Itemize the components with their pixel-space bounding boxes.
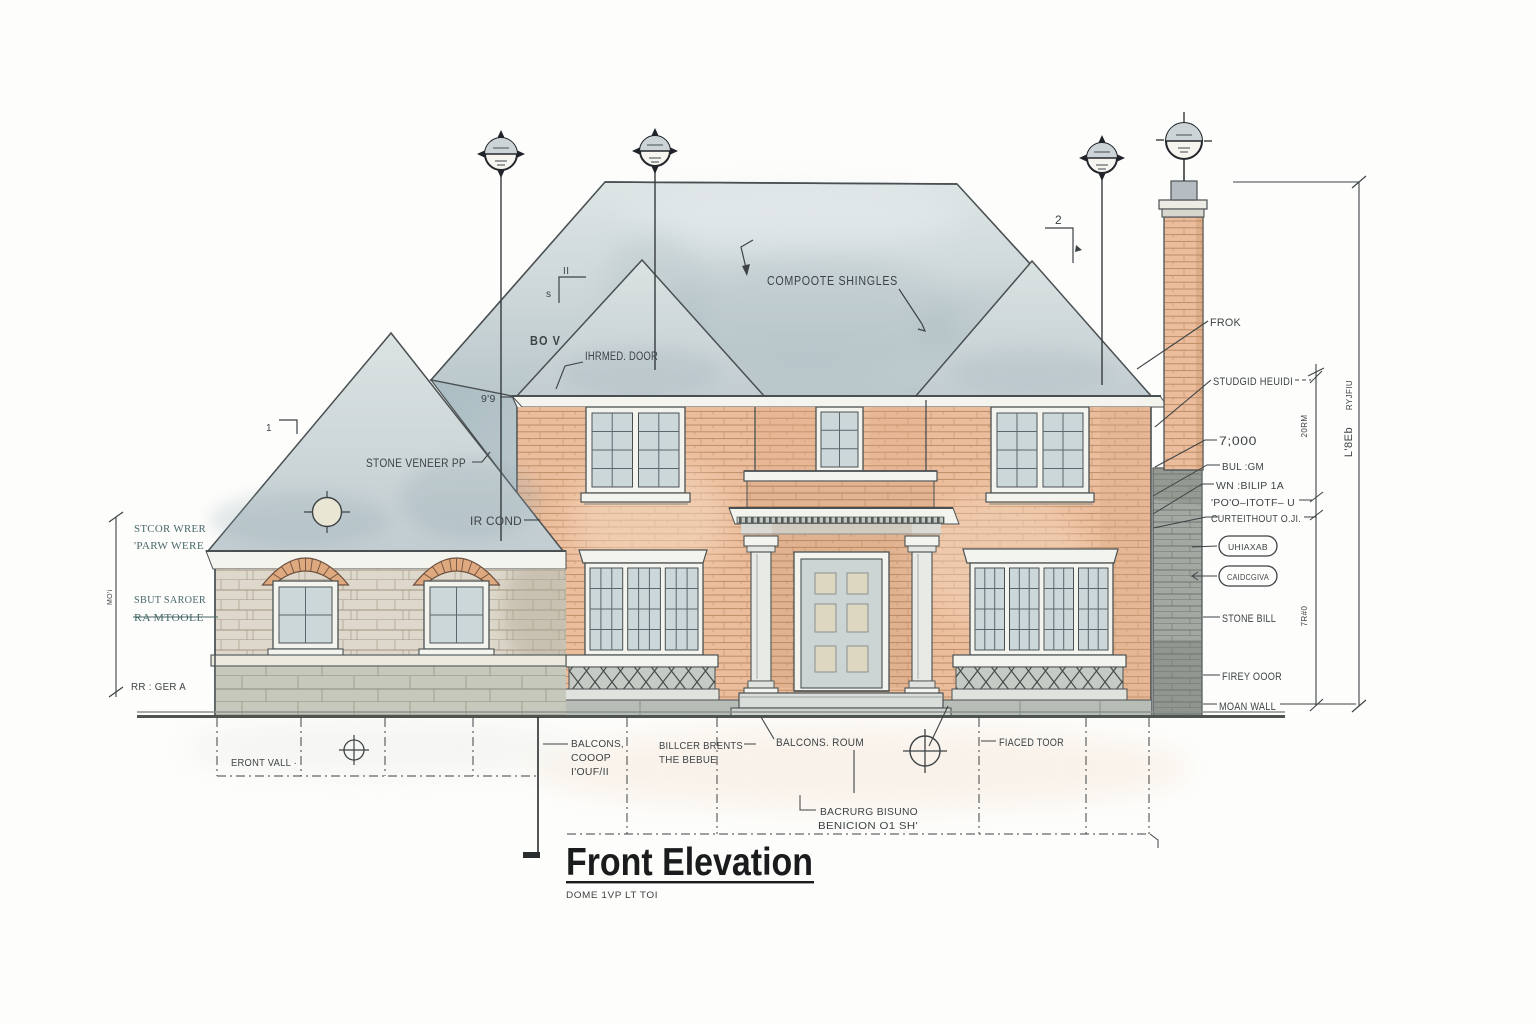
svg-text:'PO'O–ITOTF– U: 'PO'O–ITOTF– U xyxy=(1211,497,1295,509)
svg-text:WN :BILIP 1A: WN :BILIP 1A xyxy=(1216,480,1284,492)
svg-text:THE BEBUE: THE BEBUE xyxy=(659,754,717,766)
svg-text:BENICION O1 SH': BENICION O1 SH' xyxy=(818,820,918,832)
svg-text:1: 1 xyxy=(266,423,272,434)
svg-text:s: s xyxy=(546,289,552,300)
svg-text:'PARW WERE: 'PARW WERE xyxy=(134,541,204,552)
svg-text:9'9: 9'9 xyxy=(481,393,496,405)
svg-text:UHIAXAB: UHIAXAB xyxy=(1228,542,1268,552)
svg-text:BO V: BO V xyxy=(530,334,561,348)
svg-text:CURTEITHOUT O.JI.: CURTEITHOUT O.JI. xyxy=(1211,513,1301,525)
svg-text:IR COND: IR COND xyxy=(470,516,522,528)
svg-text:ERONT VALL ·: ERONT VALL · xyxy=(231,757,297,769)
svg-text:DOME 1VP LT TOI: DOME 1VP LT TOI xyxy=(566,890,658,901)
svg-text:CAIDCGIVA: CAIDCGIVA xyxy=(1227,572,1269,582)
svg-text:BALCONS. ROUM: BALCONS. ROUM xyxy=(776,737,864,749)
svg-text:BACRURG BISUNO: BACRURG BISUNO xyxy=(820,806,918,818)
svg-text:MOAN WALL: MOAN WALL xyxy=(1219,701,1276,713)
svg-text:MO'i: MO'i xyxy=(107,589,114,605)
svg-text:L'8Eb: L'8Eb xyxy=(1343,427,1355,457)
svg-text:FIREY OOOR: FIREY OOOR xyxy=(1222,671,1282,683)
svg-text:RR : GER A: RR : GER A xyxy=(131,681,186,693)
svg-text:SBUT SAROER: SBUT SAROER xyxy=(134,595,206,606)
svg-text:BUL :GM: BUL :GM xyxy=(1222,461,1264,473)
svg-text:I'OUF/II: I'OUF/II xyxy=(571,766,609,778)
svg-text:BILLCER BRENTS: BILLCER BRENTS xyxy=(659,740,743,752)
svg-text:FIACED TOOR: FIACED TOOR xyxy=(999,737,1064,749)
svg-text:STUDGID HEUIDI: STUDGID HEUIDI xyxy=(1213,376,1293,388)
svg-text:STONE VENEER PP: STONE VENEER PP xyxy=(366,458,466,470)
svg-text:II: II xyxy=(563,266,570,277)
svg-text:COOOP: COOOP xyxy=(571,752,611,764)
svg-text:FROK: FROK xyxy=(1210,317,1241,329)
svg-text:7;000: 7;000 xyxy=(1219,436,1257,448)
svg-text:20RM: 20RM xyxy=(1300,415,1309,438)
svg-text:Front Elevation: Front Elevation xyxy=(566,841,813,884)
svg-text:BALCONS,: BALCONS, xyxy=(571,738,624,750)
svg-text:RYJFIU: RYJFIU xyxy=(1345,380,1354,410)
svg-text:7R#0: 7R#0 xyxy=(1300,605,1309,626)
svg-text:2: 2 xyxy=(1055,213,1062,227)
svg-text:COMPOOTE SHINGLES: COMPOOTE SHINGLES xyxy=(767,274,898,288)
svg-text:IHRMED. DOOR: IHRMED. DOOR xyxy=(585,351,658,363)
svg-text:RA MTOOLE: RA MTOOLE xyxy=(134,613,204,624)
svg-text:STCOR WRER: STCOR WRER xyxy=(134,524,206,535)
svg-text:STONE BILL: STONE BILL xyxy=(1222,613,1276,625)
